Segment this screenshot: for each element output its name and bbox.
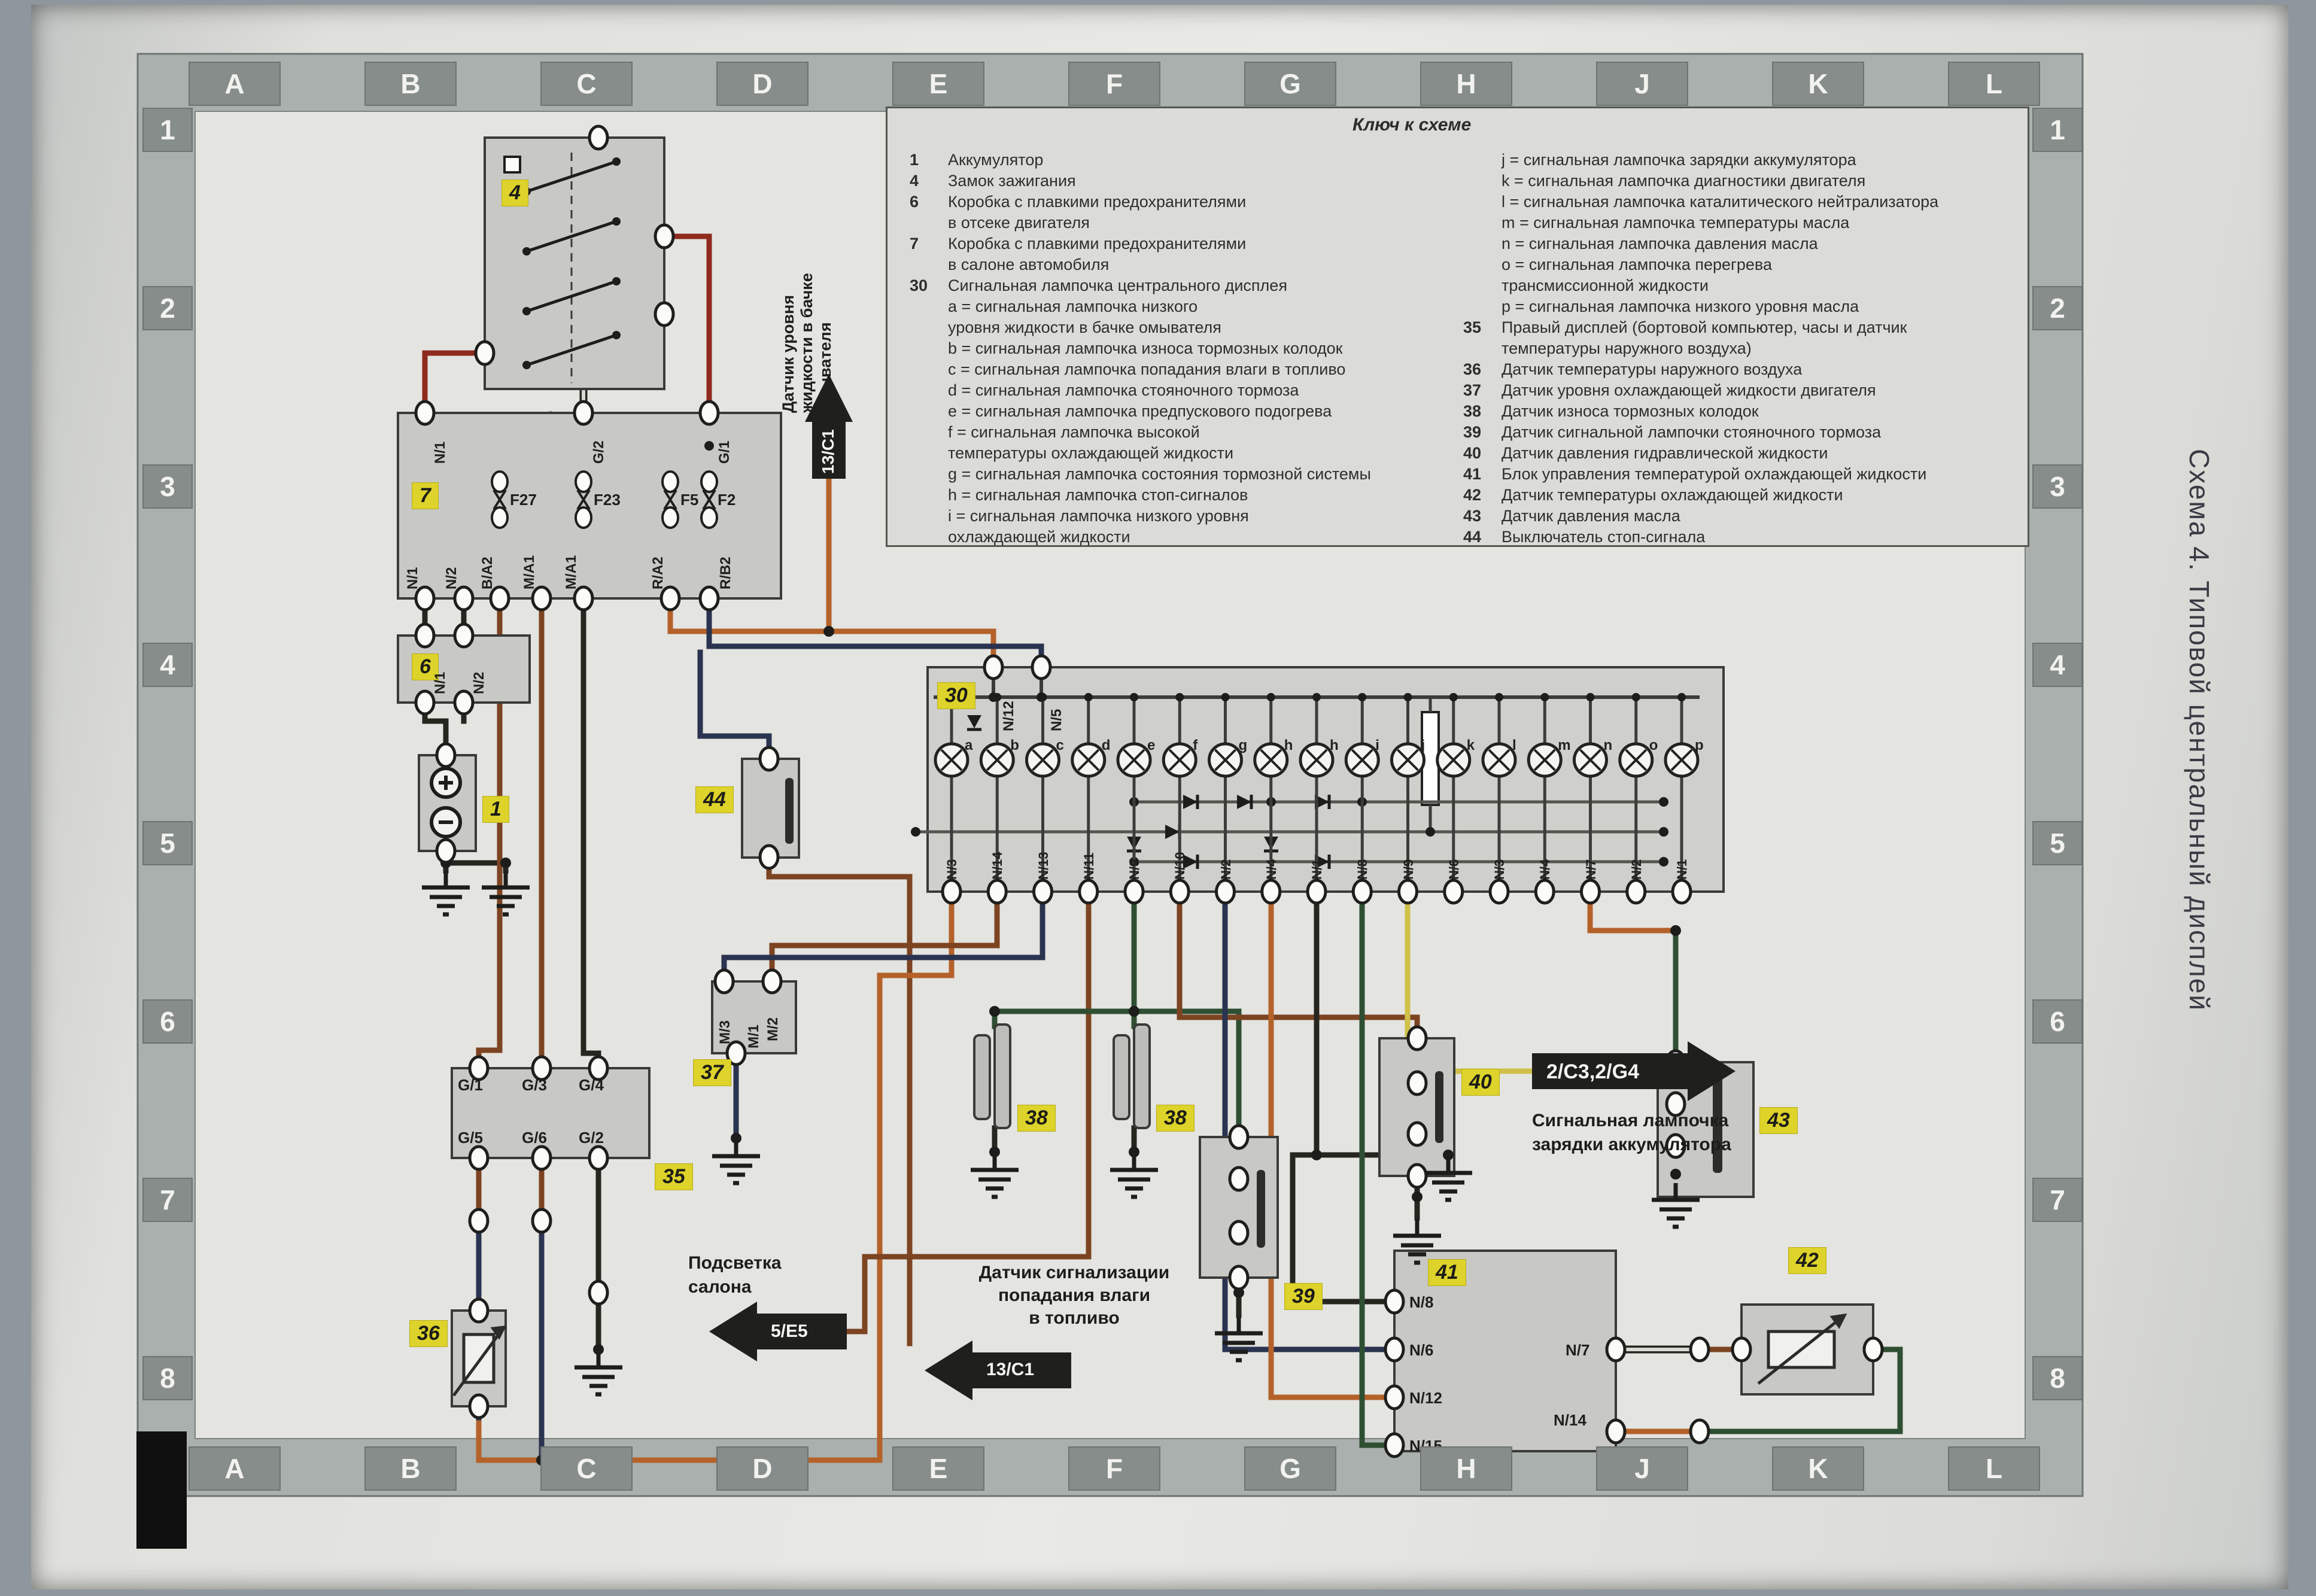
legend-line-number: [1463, 151, 1502, 169]
grid-row-left-1: 1: [142, 108, 193, 152]
display30-pin: [1308, 880, 1326, 903]
badge-4: 4: [502, 180, 528, 206]
lamp-letter-h: h: [1284, 737, 1293, 754]
legend-line-text: g = сигнальная лампочка состояния тормоз…: [948, 465, 1371, 484]
grid-row-right-6: 6: [2032, 999, 2083, 1044]
legend-line-text: d = сигнальная лампочка стояночного торм…: [948, 381, 1299, 400]
legend-line-number: [910, 360, 948, 379]
grid-row-right-5: 5: [2032, 821, 2083, 865]
legend-line: n = сигнальная лампочка давления масла: [1463, 235, 1818, 253]
display30-pin: [1627, 880, 1645, 903]
fuse-label: F5: [680, 491, 698, 509]
bus-junction: [1175, 693, 1184, 701]
legend-line-text: трансмиссионной жидкости: [1502, 276, 1709, 295]
fusebox7-top-label: G/1: [716, 440, 733, 464]
legend-line-number: 6: [910, 193, 948, 211]
lamp-letter-n: n: [1604, 737, 1613, 754]
legend-line-number: 41: [1463, 465, 1502, 484]
legend-line-text: Правый дисплей (бортовой компьютер, часы…: [1502, 318, 1907, 337]
legend-line: c = сигнальная лампочка попадания влаги …: [910, 360, 1345, 379]
display30-bottom-label: N/9: [1401, 859, 1417, 880]
grid-column-bottom-H: H: [1420, 1446, 1512, 1491]
legend-line-text: температуры наружного воздуха): [1502, 339, 1752, 358]
warning-lamp-i: [1346, 744, 1378, 776]
grid-column-top-D: D: [716, 62, 809, 106]
legend-line-text: n = сигнальная лампочка давления масла: [1502, 235, 1818, 253]
legend-line-text: j = сигнальная лампочка зарядки аккумуля…: [1502, 151, 1856, 169]
warning-lamp-d: [1072, 744, 1105, 776]
legend-line: температуры наружного воздуха): [1463, 339, 1752, 358]
grid-row-left-8: 8: [142, 1356, 193, 1400]
display30-bottom-label: N/13: [1036, 852, 1051, 880]
grid-row-right-4: 4: [2032, 643, 2083, 687]
grid-row-left-6: 6: [142, 999, 193, 1044]
legend-line-number: [910, 297, 948, 316]
legend-line: d = сигнальная лампочка стояночного торм…: [910, 381, 1299, 400]
display30-pin: [1536, 880, 1554, 903]
grid-column-bottom-G: G: [1244, 1446, 1336, 1491]
grid-row-right-2: 2: [2032, 286, 2083, 330]
washer-arrow-label: 13/C1: [819, 429, 838, 474]
legend-line-text: Коробка с плавкими предохранителями: [948, 235, 1246, 253]
legend-line: e = сигнальная лампочка предпускового по…: [910, 402, 1332, 421]
fusebox7-top-label: G/2: [591, 440, 607, 464]
legend-line: p = сигнальная лампочка низкого уровня м…: [1463, 297, 1859, 316]
legend-line-text: a = сигнальная лампочка низкого: [948, 297, 1197, 316]
fusebox7-bottom-label: B/A2: [479, 557, 496, 589]
fuse-label: F2: [718, 491, 735, 509]
grid-column-bottom-C: C: [540, 1446, 633, 1491]
legend-line-text: Сигнальная лампочка центрального дисплея: [948, 276, 1287, 295]
warning-lamp-n: [1575, 744, 1607, 776]
legend-line-text: e = сигнальная лампочка предпускового по…: [948, 402, 1332, 421]
grid-column-top-K: K: [1772, 62, 1864, 106]
fusebox7-bottom-label: M/A1: [563, 555, 580, 589]
moisture-caption: Датчик сигнализации попадания влаги в то…: [958, 1261, 1191, 1330]
legend-line: a = сигнальная лампочка низкого: [910, 297, 1197, 316]
scanned-page: { "page": { "side_caption": "Схема 4. Ти…: [0, 0, 2316, 1596]
lamp-letter-m: m: [1558, 737, 1570, 754]
lamp-letter-g: g: [1239, 737, 1248, 754]
badge-42: 42: [1788, 1247, 1826, 1274]
display30-bottom-label: N/7: [1583, 859, 1599, 880]
fuse-label: F23: [594, 491, 621, 509]
legend-line: трансмиссионной жидкости: [1463, 276, 1709, 295]
legend-line: b = сигнальная лампочка износа тормозных…: [910, 339, 1342, 358]
charge-arrow-label: 2/C3,2/G4: [1546, 1060, 1639, 1084]
badge-38b: 38: [1156, 1105, 1195, 1132]
legend-line-number: 37: [1463, 381, 1502, 400]
page-side-caption: Схема 4. Типовой центральный дисплей: [2183, 449, 2215, 1011]
warning-lamp-g: [1209, 744, 1242, 776]
box41-label: N/8: [1409, 1293, 1433, 1312]
fusebox6-label: N/1: [432, 672, 449, 694]
legend-line-number: [1463, 235, 1502, 253]
legend-line-number: [910, 339, 948, 358]
legend-line-number: [910, 256, 948, 274]
display30-bottom-label: N/1: [1309, 859, 1325, 880]
charge-caption-line1: Сигнальная лампочка: [1532, 1111, 1728, 1131]
warning-lamp-o: [1620, 744, 1652, 776]
display30-pin: [1080, 880, 1098, 903]
legend-line-text: h = сигнальная лампочка стоп-сигналов: [948, 486, 1248, 504]
legend-line-number: [1463, 276, 1502, 295]
display30-bottom-label: N/9: [1127, 859, 1142, 880]
legend-line: 4Замок зажигания: [910, 172, 1076, 190]
lamp-letter-e: e: [1147, 737, 1155, 754]
grid-column-top-A: A: [189, 62, 281, 106]
fusebox7-bottom-label: N/2: [443, 567, 460, 589]
legend-line-number: [1463, 297, 1502, 316]
display30-bottom-label: N/11: [1081, 853, 1097, 880]
legend-line-number: 36: [1463, 360, 1502, 379]
legend-line-number: 30: [910, 276, 948, 295]
legend-line: температуры охлаждающей жидкости: [910, 444, 1233, 463]
legend-line-number: [910, 423, 948, 442]
bus-junction: [1130, 693, 1138, 701]
display30-pin: [1490, 880, 1508, 903]
badge-41: 41: [1428, 1259, 1466, 1286]
lamp-letter-h: h: [1330, 737, 1339, 754]
legend-line: 41Блок управления температурой охлаждающ…: [1463, 465, 1926, 484]
legend-line-text: Датчик сигнальной лампочки стояночного т…: [1502, 423, 1881, 442]
legend-line: o = сигнальная лампочка перегрева: [1463, 256, 1772, 274]
legend-line: 38Датчик износа тормозных колодок: [1463, 402, 1759, 421]
grid-column-bottom-K: K: [1772, 1446, 1864, 1491]
legend-line-number: 40: [1463, 444, 1502, 463]
legend-line-number: [910, 381, 948, 400]
legend-line: m = сигнальная лампочка температуры масл…: [1463, 214, 1849, 232]
legend-line-text: Датчик давления гидравлической жидкости: [1502, 444, 1828, 463]
grid-column-bottom-J: J: [1596, 1446, 1688, 1491]
fusebox7-bottom-label: M/A1: [521, 555, 538, 589]
grid-row-right-8: 8: [2032, 1356, 2083, 1400]
legend-line: k = сигнальная лампочка диагностики двиг…: [1463, 172, 1865, 190]
grid-column-top-H: H: [1420, 62, 1512, 106]
display30-top-label: N/12: [1001, 701, 1017, 731]
grid-column-bottom-B: B: [364, 1446, 457, 1491]
legend-line-number: 42: [1463, 486, 1502, 504]
warning-lamp-e: [1118, 744, 1150, 776]
grid-column-top-C: C: [540, 62, 633, 106]
warning-lamp-j: [1392, 744, 1424, 776]
bus-junction: [1495, 693, 1503, 701]
legend-line: охлаждающей жидкости: [910, 528, 1130, 546]
legend-line: 44Выключатель стоп-сигнала: [1463, 528, 1705, 546]
grid-column-top-B: B: [364, 62, 457, 106]
display30-bottom-label: N/3: [944, 859, 960, 880]
badge-44: 44: [695, 786, 734, 813]
display35-label: G/1: [458, 1076, 483, 1095]
legend-line-text: Выключатель стоп-сигнала: [1502, 528, 1705, 546]
legend-line: 6Коробка с плавкими предохранителями: [910, 193, 1246, 211]
legend-line-text: b = сигнальная лампочка износа тормозных…: [948, 339, 1342, 358]
fusebox7-bottom-label: R/B2: [718, 557, 734, 589]
warning-lamp-h: [1255, 744, 1287, 776]
grid-row-right-1: 1: [2032, 108, 2083, 152]
display35-label: G/5: [458, 1129, 483, 1147]
display30-bottom-label: N/4: [1537, 859, 1553, 880]
warning-lamp-p: [1665, 744, 1698, 776]
legend-line: уровня жидкости в бачке омывателя: [910, 318, 1221, 337]
grid-column-top-E: E: [892, 62, 984, 106]
bus-junction: [1677, 693, 1686, 701]
legend-line-text: m = сигнальная лампочка температуры масл…: [1502, 214, 1849, 232]
fusebox6-label: N/2: [471, 672, 488, 694]
display35-label: G/4: [579, 1076, 604, 1095]
box37-label: M/2: [765, 1017, 782, 1041]
legend-line-number: [910, 465, 948, 484]
bus-junction: [1586, 693, 1595, 701]
grid-row-left-4: 4: [142, 643, 193, 687]
legend-line-text: Датчик износа тормозных колодок: [1502, 402, 1759, 421]
legend-line-text: Блок управления температурой охлаждающей…: [1502, 465, 1926, 484]
legend-line-number: [1463, 214, 1502, 232]
fusebox7-bottom-label: N/1: [405, 567, 421, 589]
display30-pin: [1217, 880, 1235, 903]
grid-column-top-J: J: [1596, 62, 1688, 106]
bus-junction: [1632, 693, 1640, 701]
legend-line: f = сигнальная лампочка высокой: [910, 423, 1200, 442]
box37-label: M/3: [717, 1020, 734, 1044]
component-39-parkbrake-sensor: [1200, 1137, 1278, 1278]
legend-line-number: 39: [1463, 423, 1502, 442]
corner-tab: СХ: [136, 1431, 187, 1549]
grid-row-right-3: 3: [2032, 464, 2083, 509]
legend-line-text: Замок зажигания: [948, 172, 1076, 190]
legend-line: 40Датчик давления гидравлической жидкост…: [1463, 444, 1828, 463]
display30-pin: [1445, 880, 1463, 903]
bus-junction: [1449, 693, 1458, 701]
grid-row-right-7: 7: [2032, 1178, 2083, 1222]
warning-lamp-k: [1437, 744, 1470, 776]
fuse-label: F27: [510, 491, 537, 509]
moisture-arrow-label: 13/C1: [986, 1360, 1034, 1380]
display30-bottom-label: N/6: [1446, 859, 1462, 880]
bus-junction: [1267, 693, 1275, 701]
legend-line-number: [910, 318, 948, 337]
legend-line-text: в отсеке двигателя: [948, 214, 1090, 232]
legend-line: в отсеке двигателя: [910, 214, 1090, 232]
badge-36: 36: [409, 1320, 448, 1347]
grid-column-bottom-A: A: [189, 1446, 281, 1491]
cabin-caption-line1: Подсветка: [688, 1253, 782, 1273]
legend-line-text: температуры охлаждающей жидкости: [948, 444, 1233, 463]
display30-top-label: N/5: [1048, 709, 1065, 731]
display35-label: G/2: [579, 1129, 604, 1147]
legend-line: 36Датчик температуры наружного воздуха: [1463, 360, 1802, 379]
legend-line-number: 7: [910, 235, 948, 253]
display30-pin: [1125, 880, 1143, 903]
lamp-letter-k: k: [1467, 737, 1475, 754]
box41-label: N/14: [1554, 1411, 1586, 1430]
display30-pin: [1673, 880, 1691, 903]
grid-column-bottom-L: L: [1948, 1446, 2040, 1491]
legend-line: j = сигнальная лампочка зарядки аккумуля…: [1463, 151, 1856, 169]
legend-line: 39Датчик сигнальной лампочки стояночного…: [1463, 423, 1881, 442]
grid-row-left-3: 3: [142, 464, 193, 509]
legend-line: 30Сигнальная лампочка центрального диспл…: [910, 276, 1287, 295]
bus-junction: [993, 693, 1001, 701]
legend-line-text: k = сигнальная лампочка диагностики двиг…: [1502, 172, 1865, 190]
warning-lamp-f: [1163, 744, 1196, 776]
legend-line: 37Датчик уровня охлаждающей жидкости дви…: [1463, 381, 1876, 400]
display30-pin: [1582, 880, 1600, 903]
legend-line: l = сигнальная лампочка каталитического …: [1463, 193, 1938, 211]
lamp-letter-o: o: [1649, 737, 1658, 754]
legend-line: i = сигнальная лампочка низкого уровня: [910, 507, 1249, 525]
cabin-caption-line2: салона: [688, 1277, 752, 1297]
legend-line-text: Аккумулятор: [948, 151, 1043, 169]
legend-line-number: [1463, 256, 1502, 274]
lamp-letter-j: j: [1421, 737, 1426, 754]
badge-38a: 38: [1017, 1105, 1056, 1132]
legend-title: Ключ к схеме: [1352, 115, 1471, 135]
display30-pin: [1034, 880, 1052, 903]
legend-line-text: o = сигнальная лампочка перегрева: [1502, 256, 1772, 274]
legend-line-number: [910, 507, 948, 525]
legend-line-text: Коробка с плавкими предохранителями: [948, 193, 1246, 211]
grid-row-left-2: 2: [142, 286, 193, 330]
legend-line-text: f = сигнальная лампочка высокой: [948, 423, 1200, 442]
fusebox7-top-label: N/1: [432, 442, 449, 464]
lamp-letter-l: l: [1512, 737, 1516, 754]
lamp-letter-f: f: [1193, 737, 1197, 754]
display35-label: G/6: [522, 1129, 547, 1147]
warning-lamp-b: [981, 744, 1013, 776]
lamp-letter-b: b: [1010, 737, 1019, 754]
legend-line-number: [910, 528, 948, 546]
grid-column-bottom-D: D: [716, 1446, 809, 1491]
legend-line-text: Датчик температуры охлаждающей жидкости: [1502, 486, 1843, 504]
badge-1: 1: [482, 796, 509, 823]
legend-line-text: уровня жидкости в бачке омывателя: [948, 318, 1221, 337]
display30-bottom-label: N/3: [1492, 859, 1507, 880]
bus-junction: [1039, 693, 1047, 701]
display30-bottom-label: N/2: [1218, 859, 1234, 880]
grid-column-top-F: F: [1068, 62, 1160, 106]
legend-line: 43Датчик давления масла: [1463, 507, 1680, 525]
lamp-letter-d: d: [1102, 737, 1111, 754]
display30-bottom-label: N/1: [1674, 859, 1690, 880]
legend-line-number: [910, 214, 948, 232]
legend-line-text: p = сигнальная лампочка низкого уровня м…: [1502, 297, 1859, 316]
cabin-arrow-label: 5/E5: [771, 1321, 808, 1342]
legend-line-text: охлаждающей жидкости: [948, 528, 1130, 546]
legend-line: 1Аккумулятор: [910, 151, 1043, 169]
washer-caption: Датчик уровня жидкости в бачке омывателя: [779, 273, 835, 413]
legend-line-number: 4: [910, 172, 948, 190]
legend-line-number: 35: [1463, 318, 1502, 337]
display30-bottom-label: N/14: [990, 852, 1005, 880]
badge-43: 43: [1759, 1107, 1798, 1134]
legend-line: h = сигнальная лампочка стоп-сигналов: [910, 486, 1248, 504]
legend-line-number: [910, 486, 948, 504]
legend-line-number: [910, 444, 948, 463]
warning-lamp-l: [1483, 744, 1515, 776]
legend-line-text: i = сигнальная лампочка низкого уровня: [948, 507, 1249, 525]
display30-pin: [1399, 880, 1417, 903]
bus-junction: [1312, 693, 1321, 701]
warning-lamp-a: [935, 744, 968, 776]
fusebox7-bottom-label: R/A2: [650, 557, 667, 589]
legend-line-number: [1463, 172, 1502, 190]
box41-label: N/6: [1409, 1341, 1433, 1360]
legend-line-text: Датчик температуры наружного воздуха: [1502, 360, 1802, 379]
lamp-letter-a: a: [965, 737, 972, 754]
legend-line-text: c = сигнальная лампочка попадания влаги …: [948, 360, 1345, 379]
warning-lamp-h: [1300, 744, 1333, 776]
display30-bottom-label: N/4: [1264, 859, 1279, 880]
lamp-letter-i: i: [1375, 737, 1379, 754]
display35-label: G/3: [522, 1076, 547, 1095]
legend-line-text: Датчик уровня охлаждающей жидкости двига…: [1502, 381, 1876, 400]
bus-junction: [1358, 693, 1366, 701]
legend-line-number: [910, 402, 948, 421]
legend-line-text: Датчик давления масла: [1502, 507, 1680, 525]
display30-pin: [1171, 880, 1189, 903]
box41-label: N/12: [1409, 1389, 1442, 1407]
badge-30: 30: [937, 682, 975, 709]
grid-column-bottom-E: E: [892, 1446, 984, 1491]
badge-35: 35: [655, 1163, 693, 1190]
box41-label: N/7: [1566, 1341, 1589, 1360]
badge-7: 7: [412, 482, 439, 509]
display30-bottom-label: N/10: [1172, 852, 1188, 880]
legend-line: 7Коробка с плавкими предохранителями: [910, 235, 1246, 253]
bus-junction: [1404, 693, 1412, 701]
bus-junction: [1540, 693, 1549, 701]
legend-line-number: 1: [910, 151, 948, 169]
legend-line-number: [1463, 339, 1502, 358]
display30-bottom-label: N/2: [1629, 859, 1645, 880]
display30-pin: [943, 880, 961, 903]
display30-pin: [1262, 880, 1280, 903]
charge-caption-line2: зарядки аккумулятора: [1532, 1135, 1731, 1155]
legend-line-number: 43: [1463, 507, 1502, 525]
bus-junction: [1221, 693, 1230, 701]
lamp-letter-p: p: [1695, 737, 1704, 754]
warning-lamp-m: [1528, 744, 1561, 776]
legend-line: g = сигнальная лампочка состояния тормоз…: [910, 465, 1371, 484]
display30-bottom-label: N/8: [1355, 859, 1370, 880]
grid-column-top-L: L: [1948, 62, 2040, 106]
grid-column-bottom-F: F: [1068, 1446, 1160, 1491]
bus-junction: [1084, 693, 1093, 701]
badge-40: 40: [1461, 1069, 1500, 1096]
grid-row-left-7: 7: [142, 1178, 193, 1222]
legend-line-number: 38: [1463, 402, 1502, 421]
box37-label: M/1: [746, 1025, 762, 1048]
badge-37: 37: [693, 1059, 731, 1086]
grid-column-top-G: G: [1244, 62, 1336, 106]
display30-pin: [988, 880, 1006, 903]
legend-line-number: [1463, 193, 1502, 211]
legend-line: 35Правый дисплей (бортовой компьютер, ча…: [1463, 318, 1907, 337]
display30-pin: [1353, 880, 1371, 903]
legend-line-text: l = сигнальная лампочка каталитического …: [1502, 193, 1938, 211]
legend-line: 42Датчик температуры охлаждающей жидкост…: [1463, 486, 1843, 504]
legend-line: в салоне автомобиля: [910, 256, 1109, 274]
warning-lamp-c: [1027, 744, 1059, 776]
legend-line-number: 44: [1463, 528, 1502, 546]
lamp-letter-c: c: [1056, 737, 1064, 754]
badge-39: 39: [1284, 1283, 1323, 1310]
legend-line-text: в салоне автомобиля: [948, 256, 1109, 274]
grid-row-left-5: 5: [142, 821, 193, 865]
